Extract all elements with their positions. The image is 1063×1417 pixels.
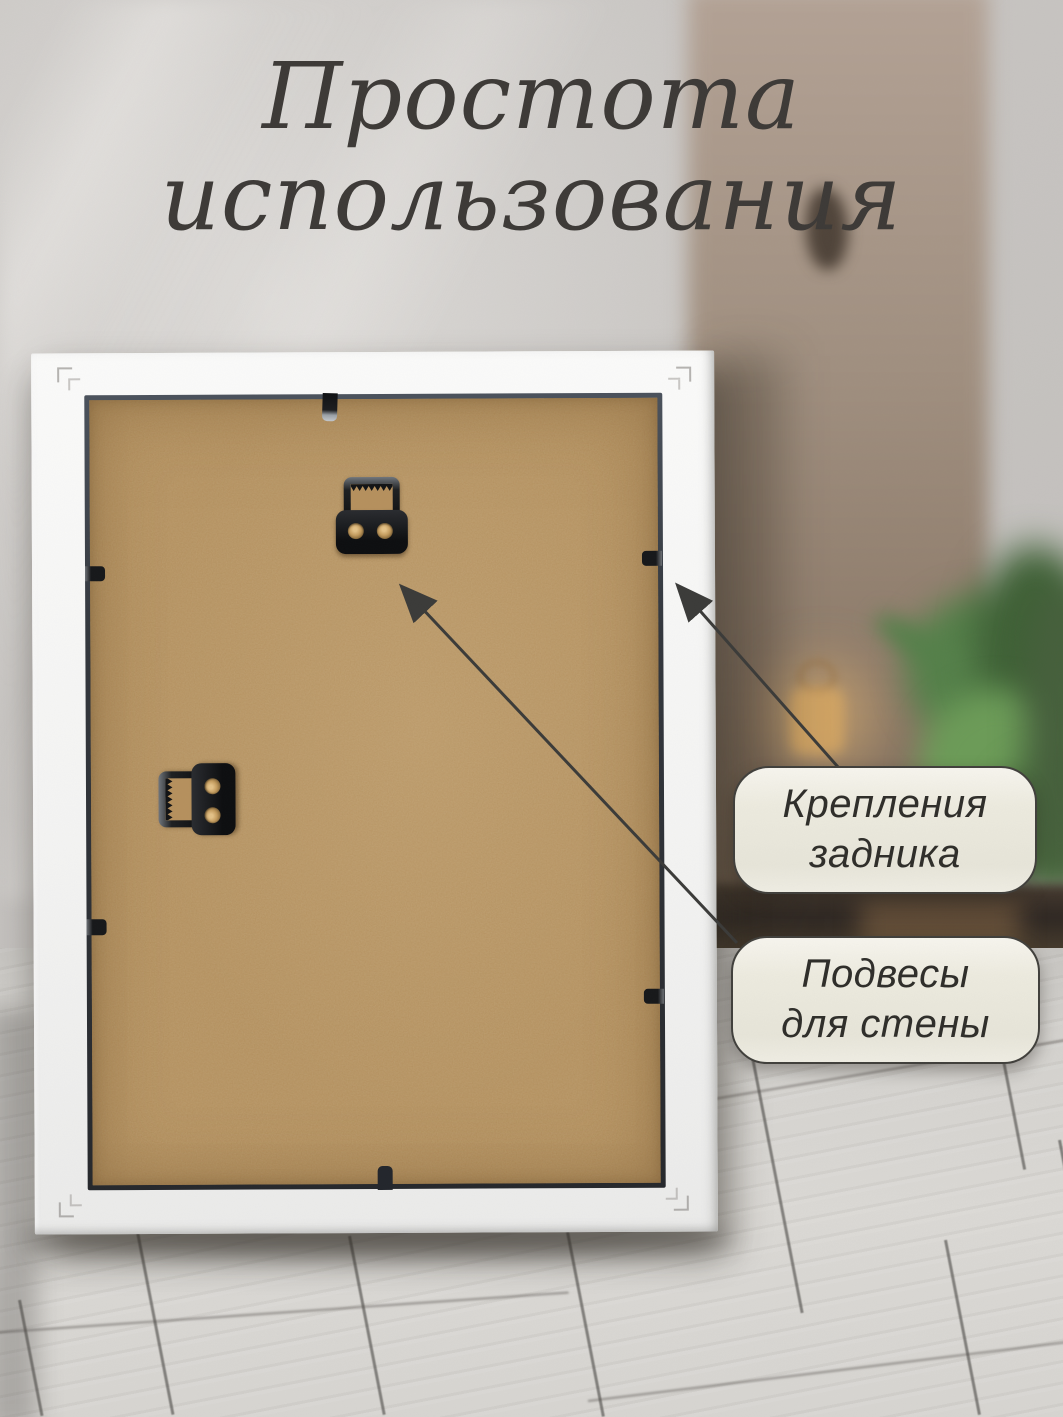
callout-backing-fasteners: Крепления задника bbox=[733, 766, 1037, 894]
sawtooth-teeth bbox=[351, 484, 393, 492]
sawtooth-hanger-top bbox=[336, 477, 408, 554]
callout-backing-fasteners-line-1: Крепления bbox=[782, 780, 987, 830]
callout-backing-fasteners-line-2: задника bbox=[809, 830, 960, 880]
page-title: Простота использования bbox=[0, 46, 1063, 248]
screw-hole bbox=[348, 523, 364, 539]
screw-hole bbox=[377, 523, 393, 539]
page-title-line-2: использования bbox=[0, 147, 1063, 248]
corner-staple-mark bbox=[57, 1181, 95, 1219]
callout-wall-hangers-line-2: для стены bbox=[781, 1000, 990, 1050]
page-title-line-1: Простота bbox=[0, 46, 1063, 147]
product-photo-scene: Простота использования bbox=[0, 0, 1063, 1417]
hanger-plate bbox=[336, 510, 408, 554]
corner-staple-mark bbox=[655, 365, 693, 403]
sawtooth-hanger-side bbox=[158, 763, 235, 835]
backing-clip-top bbox=[322, 393, 338, 421]
lantern-body bbox=[790, 688, 844, 754]
backing-clip-right-lower bbox=[644, 989, 664, 1004]
backing-clip-left-lower bbox=[87, 919, 107, 935]
hanger-window bbox=[351, 484, 393, 511]
hanger-window bbox=[165, 778, 192, 820]
callout-wall-hangers: Подвесы для стены bbox=[731, 936, 1040, 1064]
backing-clip-right-upper bbox=[642, 551, 662, 566]
corner-staple-mark bbox=[55, 365, 93, 403]
picture-frame-back bbox=[31, 351, 718, 1235]
sawtooth-teeth bbox=[165, 778, 173, 820]
screw-hole bbox=[205, 807, 221, 823]
corner-staple-mark bbox=[653, 1175, 691, 1213]
frame-side-shadow bbox=[0, 1010, 38, 1417]
backing-clip-left-upper bbox=[85, 566, 105, 581]
backing-clip-bottom bbox=[378, 1166, 393, 1190]
callout-wall-hangers-line-1: Подвесы bbox=[801, 950, 969, 1000]
hanger-plate bbox=[191, 763, 235, 835]
screw-hole bbox=[204, 778, 220, 794]
